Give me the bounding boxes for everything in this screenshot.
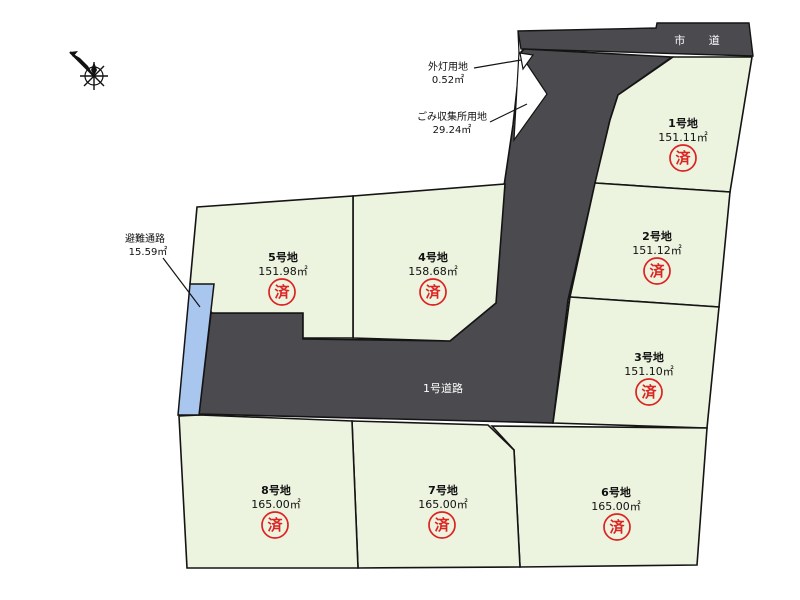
plot-6-shape (492, 426, 707, 567)
plot-2-area: 151.12㎡ (632, 244, 682, 257)
plot-1-sold-text: 済 (675, 149, 691, 167)
compass-rose-icon (70, 51, 108, 90)
plot-1-area: 151.11㎡ (658, 131, 708, 144)
plot-4-sold-text: 済 (425, 283, 441, 301)
plot-5-area: 151.98㎡ (258, 265, 308, 278)
plot-7-sold-text: 済 (434, 516, 450, 534)
plot-8-name: 8号地 (261, 483, 291, 497)
plot-6-area: 165.00㎡ (591, 500, 641, 513)
garbage-station-area-value: 29.24㎡ (433, 124, 472, 136)
plot-3-area: 151.10㎡ (624, 365, 674, 378)
plot-4-name: 4号地 (418, 250, 448, 264)
plot-5-name: 5号地 (268, 250, 298, 264)
map-canvas: 外灯用地 0.52㎡ ごみ収集所用地 29.24㎡ 避難通路 15.59㎡ 市 … (0, 0, 800, 600)
road-1-label: 1号道路 (423, 381, 463, 395)
plot-2-sold-text: 済 (649, 262, 665, 280)
street-light-leader-line (474, 60, 521, 68)
plot-8-area: 165.00㎡ (251, 498, 301, 511)
plot-3-sold-text: 済 (641, 383, 657, 401)
city-road-label: 市 道 (674, 33, 730, 47)
plot-2-name: 2号地 (642, 229, 672, 243)
garbage-station-label: ごみ収集所用地 (417, 110, 487, 123)
plot-8-sold-text: 済 (267, 516, 283, 534)
street-light-area-value: 0.52㎡ (432, 74, 464, 86)
plot-7-area: 165.00㎡ (418, 498, 468, 511)
evacuation-path-label: 避難通路 (125, 232, 165, 245)
plot-3-name: 3号地 (634, 350, 664, 364)
street-light-label: 外灯用地 (428, 60, 468, 73)
subdivision-map: 外灯用地 0.52㎡ ごみ収集所用地 29.24㎡ 避難通路 15.59㎡ 市 … (0, 0, 800, 600)
plot-5-sold-text: 済 (274, 283, 290, 301)
plot-6-sold-text: 済 (609, 518, 625, 536)
plot-4-area: 158.68㎡ (408, 265, 458, 278)
plot-1-name: 1号地 (668, 116, 698, 130)
evacuation-path-area-value: 15.59㎡ (129, 246, 168, 258)
plot-7-name: 7号地 (428, 483, 458, 497)
plot-6-name: 6号地 (601, 485, 631, 499)
